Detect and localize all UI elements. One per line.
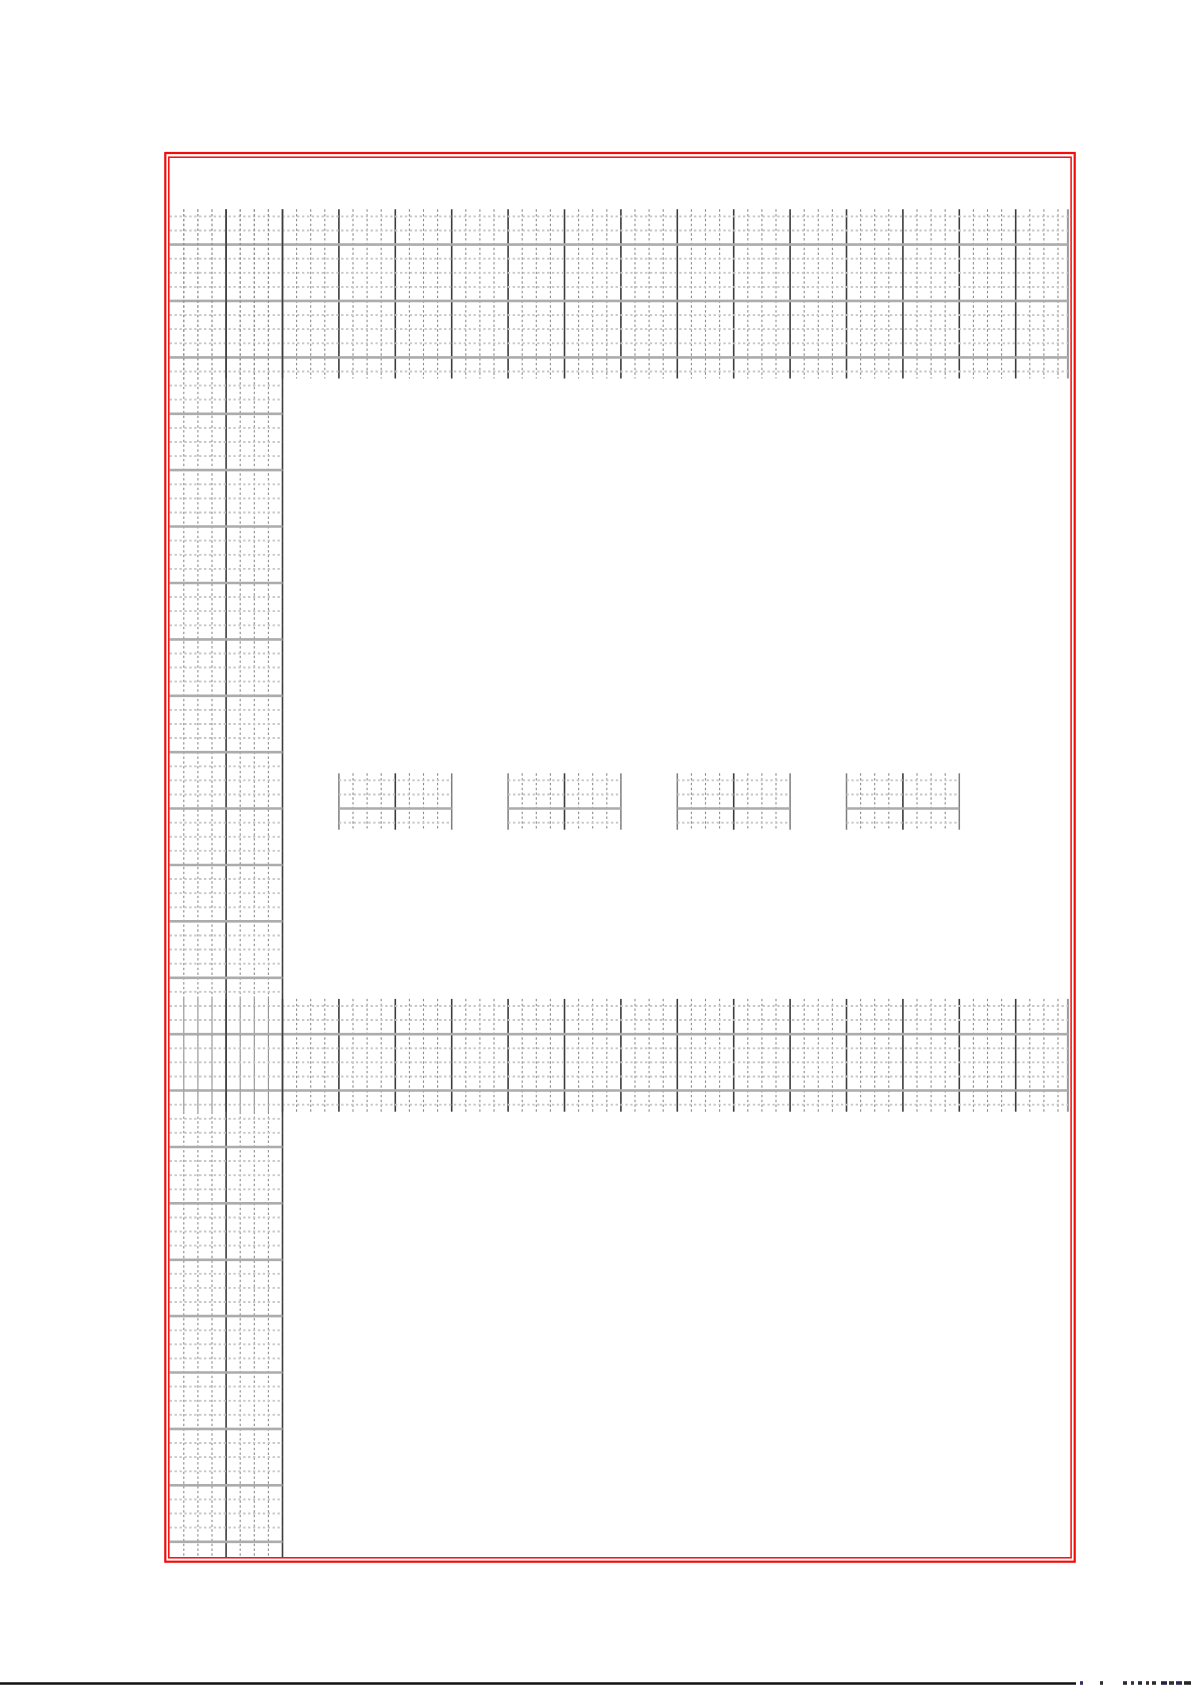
grid-paper-svg — [0, 0, 1192, 1685]
scanned-page — [0, 0, 1192, 1685]
sheet-background — [0, 0, 1192, 1685]
